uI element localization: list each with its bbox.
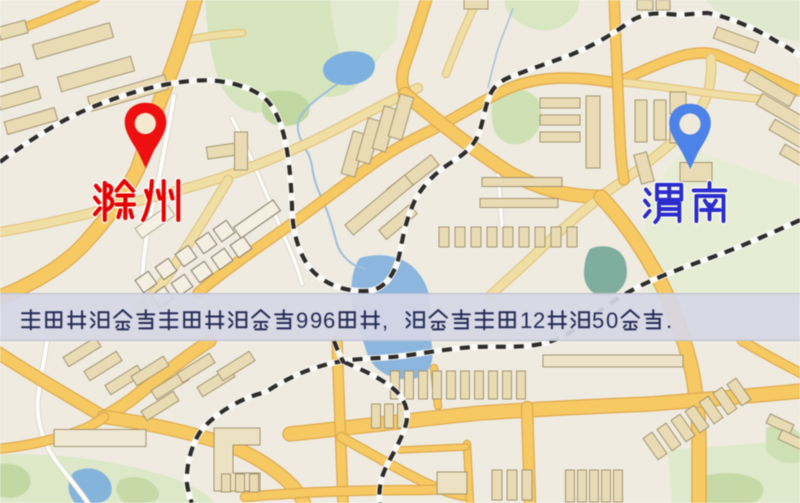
svg-text:2: 2: [533, 308, 545, 333]
svg-text:5: 5: [592, 308, 604, 333]
svg-text:.: .: [666, 308, 672, 333]
svg-text:1: 1: [520, 308, 532, 333]
svg-text:9: 9: [310, 308, 322, 333]
svg-text:9: 9: [296, 308, 308, 333]
svg-text:0: 0: [606, 308, 618, 333]
svg-text:,: ,: [382, 308, 388, 333]
svg-text:6: 6: [323, 308, 335, 333]
